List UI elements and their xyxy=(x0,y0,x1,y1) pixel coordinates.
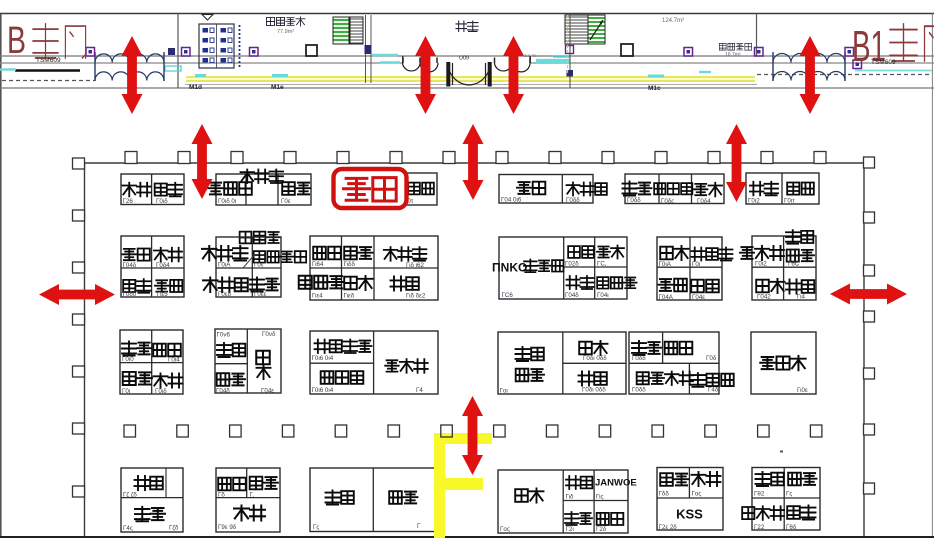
svg-text:Γιδδ: Γιδδ xyxy=(344,261,356,268)
svg-text:Γ04δ: Γ04δ xyxy=(216,388,230,395)
svg-text:Γ0δι 0δδ: Γ0δι 0δδ xyxy=(583,355,607,362)
svg-text:Γ0ιΑ: Γ0ιΑ xyxy=(659,261,672,268)
svg-text:Γιε5: Γιε5 xyxy=(157,291,168,298)
svg-text:Γ04 0ι6: Γ04 0ι6 xyxy=(501,197,522,204)
svg-text:ΓC6: ΓC6 xyxy=(502,292,514,299)
svg-text:ΓC,: ΓC, xyxy=(597,261,607,268)
svg-text:Γ0ι: Γ0ι xyxy=(122,388,131,395)
svg-text:Γ0ιδ: Γ0ιδ xyxy=(155,388,167,395)
svg-text:Γ0ιΑ: Γ0ιΑ xyxy=(218,262,231,269)
svg-text:Γ0δδ: Γ0δδ xyxy=(632,355,646,362)
svg-text:Γ0ι2: Γ0ι2 xyxy=(755,261,767,268)
svg-text:TSM609: TSM609 xyxy=(871,59,896,66)
svg-text:Γζδ: Γζδ xyxy=(169,525,179,532)
svg-text:Γ0δς: Γ0δς xyxy=(661,198,674,205)
svg-text:M1c: M1c xyxy=(648,85,661,92)
svg-text:Γ2ι: Γ2ι xyxy=(566,526,575,533)
svg-text:Γιεδ: Γιεδ xyxy=(344,293,355,300)
svg-text:Γ0ι0: Γ0ι0 xyxy=(122,356,134,363)
svg-text:Γ: Γ xyxy=(417,523,421,530)
svg-text:M1d: M1d xyxy=(189,84,202,91)
svg-text:Γ2δ: Γ2δ xyxy=(596,526,607,533)
svg-text:Γ4: Γ4 xyxy=(416,387,423,394)
svg-text:JANWOE: JANWOE xyxy=(595,478,637,489)
svg-text:Γ4ς: Γ4ς xyxy=(123,525,133,532)
svg-text:2.1 4a: 2.1 4a xyxy=(524,53,537,58)
svg-text:B: B xyxy=(7,20,26,62)
svg-text:Γος: Γος xyxy=(500,526,510,533)
svg-text:Γ0δ0: Γ0δ0 xyxy=(123,291,137,298)
svg-text:Γιε4: Γιε4 xyxy=(312,293,323,300)
svg-text:Γ02δ: Γ02δ xyxy=(565,261,579,268)
svg-text:Γθδ: Γθδ xyxy=(786,524,797,531)
svg-text:Γοι: Γοι xyxy=(500,388,509,395)
svg-text:Γ,: Γ, xyxy=(250,491,255,498)
svg-text:TSM609: TSM609 xyxy=(36,57,61,64)
svg-text:Γιδ: Γιδ xyxy=(566,494,575,501)
svg-text:Γς: Γς xyxy=(313,524,319,531)
svg-text:Γ0ιτ: Γ0ιτ xyxy=(784,198,795,205)
svg-text:Γ042: Γ042 xyxy=(757,294,771,301)
svg-text:Γ0νδ: Γ0νδ xyxy=(262,331,276,338)
svg-text:Γ0δ4: Γ0δ4 xyxy=(697,198,711,205)
svg-text:M1e: M1e xyxy=(271,84,284,91)
svg-text:Γ0δι 0δδ: Γ0δι 0δδ xyxy=(582,387,606,394)
svg-text:Γδδ: Γδδ xyxy=(659,491,670,498)
svg-text:Γις: Γις xyxy=(596,494,604,501)
svg-text:Γς: Γς xyxy=(786,491,792,498)
svg-text:U09: U09 xyxy=(459,56,469,62)
svg-text:Γθ2: Γθ2 xyxy=(754,491,765,498)
svg-text:124.7m²: 124.7m² xyxy=(662,18,684,24)
svg-text:Γιδ ι62: Γιδ ι62 xyxy=(406,262,424,269)
svg-text:Γ22: Γ22 xyxy=(754,524,765,531)
svg-text:Γ0δδ: Γ0δδ xyxy=(632,387,646,394)
svg-text:Γι4: Γι4 xyxy=(797,294,806,301)
svg-text:Γ0δδ: Γ0δδ xyxy=(566,197,580,204)
svg-text:Γ0ι6 0ι4: Γ0ι6 0ι4 xyxy=(312,387,334,394)
svg-text:Γ6C: Γ6C xyxy=(788,261,800,268)
svg-text:Γ0ι: Γ0ι xyxy=(692,261,701,268)
svg-text:Γζ ζδ: Γζ ζδ xyxy=(123,491,137,498)
svg-text:Γ0ε: Γ0ε xyxy=(254,262,264,269)
svg-text:Γδ: Γδ xyxy=(218,491,225,498)
svg-text:KSS: KSS xyxy=(676,507,703,522)
svg-text:Γ04ε: Γ04ε xyxy=(692,294,705,301)
svg-text:Γ04Α: Γ04Α xyxy=(659,294,674,301)
svg-text:Γ04ι: Γ04ι xyxy=(597,292,609,299)
svg-text:ΠNKO: ΠNKO xyxy=(492,261,527,275)
svg-text:16.7m²: 16.7m² xyxy=(725,52,741,58)
svg-text:77.9m²: 77.9m² xyxy=(277,29,294,35)
svg-text:Γ2ε 2δ: Γ2ε 2δ xyxy=(659,524,678,531)
svg-text:Γ04δ: Γ04δ xyxy=(123,262,137,269)
svg-text:Γ0εδ: Γ0εδ xyxy=(218,291,232,298)
svg-text:Γ0ι6 0ι4: Γ0ι6 0ι4 xyxy=(312,355,334,362)
svg-text:Γ0ιδ: Γ0ιδ xyxy=(156,198,168,205)
svg-text:Γ0δδ: Γ0δδ xyxy=(627,197,641,204)
svg-text:Γ0ι2: Γ0ι2 xyxy=(748,198,760,205)
svg-text:Γ0δ4: Γ0δ4 xyxy=(156,262,170,269)
svg-text:Γ04ε: Γ04ε xyxy=(261,388,274,395)
svg-text:Γ0ε: Γ0ε xyxy=(281,198,291,205)
svg-text:Γ0ιδ 0ι: Γ0ιδ 0ι xyxy=(218,198,237,205)
svg-text:Γ0ν6: Γ0ν6 xyxy=(217,332,231,339)
svg-text:Γι0ε: Γι0ε xyxy=(797,387,808,394)
svg-text:Γ0δ: Γ0δ xyxy=(706,355,717,362)
svg-text:Γ9ε 9δ: Γ9ε 9δ xyxy=(218,524,237,531)
svg-text:Γ04δ: Γ04δ xyxy=(565,292,579,299)
svg-text:Γ0εε: Γ0εε xyxy=(254,291,267,298)
svg-text:Γιδ δε2: Γιδ δε2 xyxy=(406,293,426,300)
svg-text:Γι64: Γι64 xyxy=(312,261,324,268)
svg-text:Γ26: Γ26 xyxy=(123,198,134,205)
svg-text:Γ0ι4: Γ0ι4 xyxy=(168,357,180,364)
svg-text:Γ4δ: Γ4δ xyxy=(708,387,719,394)
svg-text:Γος: Γος xyxy=(692,491,702,498)
